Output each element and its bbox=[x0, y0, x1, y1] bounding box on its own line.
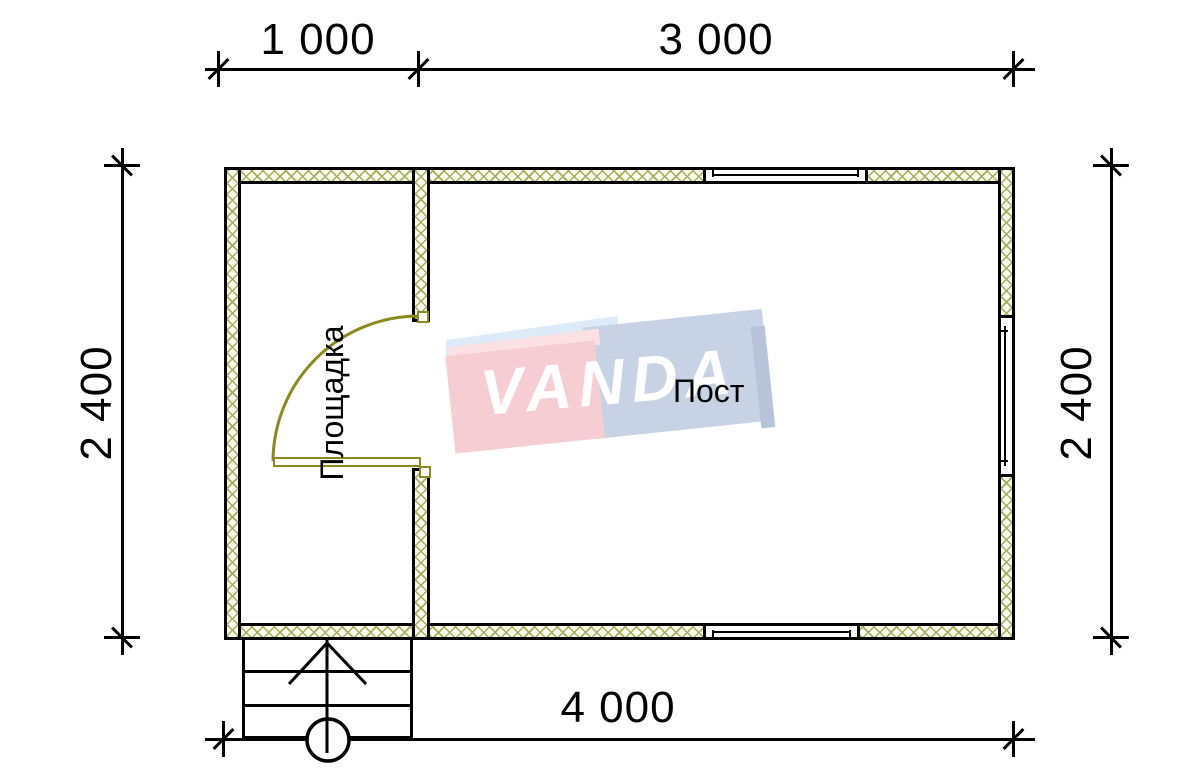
partition-wall-upper bbox=[412, 167, 430, 322]
window-glazing-line bbox=[714, 174, 857, 176]
dimension-label-right-2400: 2 400 bbox=[1055, 303, 1099, 503]
top-dimension-line bbox=[205, 68, 1035, 71]
entrance-stairs bbox=[242, 640, 413, 739]
wall-left bbox=[224, 167, 241, 640]
partition-wall-lower bbox=[412, 468, 430, 640]
dimension-label-top-1000: 1 000 bbox=[238, 18, 398, 62]
floor-plan-canvas: 1 000 3 000 2 400 2 400 4 000 bbox=[0, 0, 1200, 772]
stair-step-line bbox=[245, 670, 410, 673]
window-tick bbox=[1001, 330, 1008, 332]
window-glazing-line bbox=[1004, 326, 1006, 466]
room-label-post: Пост bbox=[673, 374, 744, 409]
stair-step-line bbox=[245, 704, 410, 707]
window-bottom bbox=[703, 623, 860, 640]
window-tick bbox=[849, 630, 851, 637]
window-right bbox=[998, 315, 1015, 477]
window-tick bbox=[712, 630, 714, 637]
left-dimension-line bbox=[121, 148, 124, 655]
dimension-label-bottom-4000: 4 000 bbox=[518, 686, 718, 730]
wall-bottom bbox=[224, 623, 1015, 640]
dimension-label-left-2400: 2 400 bbox=[75, 303, 119, 503]
door-jamb-bottom bbox=[419, 466, 431, 478]
window-tick bbox=[1001, 460, 1008, 462]
window-tick bbox=[857, 170, 859, 177]
dimension-label-top-3000: 3 000 bbox=[616, 18, 816, 62]
window-glazing-line bbox=[714, 631, 849, 633]
window-top bbox=[703, 167, 868, 184]
wall-top bbox=[224, 167, 1015, 184]
right-dimension-line bbox=[1110, 148, 1113, 655]
door-jamb-top bbox=[417, 311, 429, 323]
room-label-ploshchadka: Площадка bbox=[315, 298, 351, 508]
window-tick bbox=[712, 170, 714, 177]
